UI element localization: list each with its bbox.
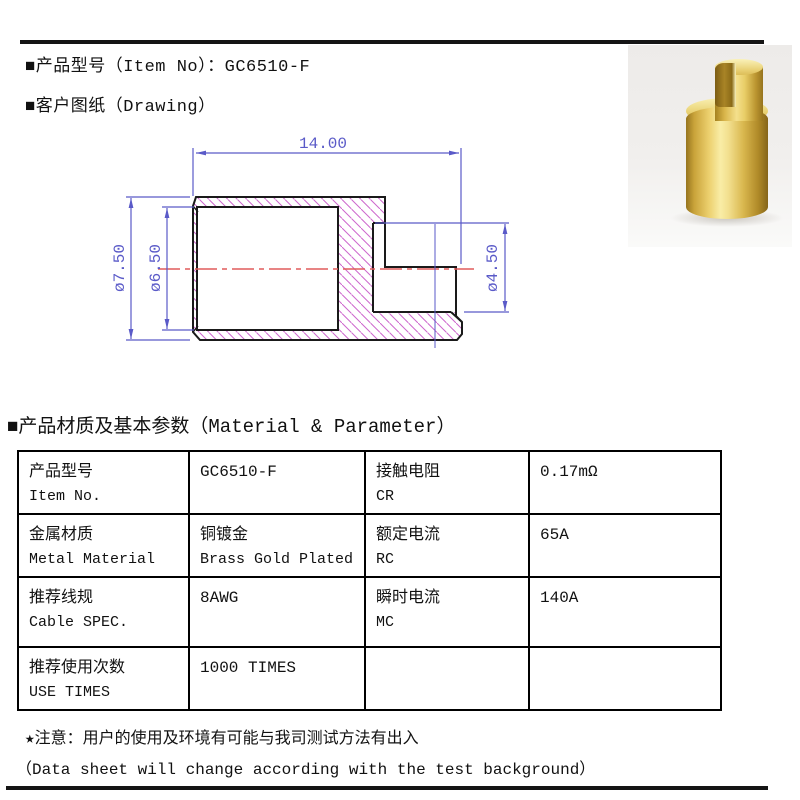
cell-line-cn: 产品型号: [29, 459, 182, 485]
table-cell: 推荐使用次数USE TIMES: [18, 647, 189, 710]
table-cell: 接触电阻CR: [365, 451, 529, 514]
table-row: 金属材质Metal Material 铜镀金Brass Gold Plated …: [18, 514, 721, 577]
cell-line-cn: 铜镀金: [200, 522, 358, 548]
cell-line-cn: 额定电流: [376, 522, 522, 548]
dim-outer-dia-label: ø7.50: [111, 244, 129, 292]
item-no-title: ■产品型号（Item No）：GC6510-F: [25, 51, 310, 77]
divider-top: [20, 40, 764, 44]
table-cell: [529, 647, 721, 710]
divider-bottom: [6, 786, 768, 790]
cell-line-en: Metal Material: [29, 548, 182, 572]
notice-line-cn: ★注意：用户的使用及环境有可能与我司测试方法有出入: [25, 724, 419, 748]
dim-length-label: 14.00: [299, 135, 347, 153]
cell-line-en: MC: [376, 611, 522, 635]
cell-line-cn: 接触电阻: [376, 459, 522, 485]
cell-line-cn: 140A: [540, 585, 714, 611]
cell-line-cn: 推荐线规: [29, 585, 182, 611]
table-cell: 0.17mΩ: [529, 451, 721, 514]
cell-line-cn: 推荐使用次数: [29, 655, 182, 681]
cell-line-cn: 0.17mΩ: [540, 459, 714, 485]
product-photo: [628, 45, 792, 247]
cell-line-en: Cable SPEC.: [29, 611, 182, 635]
cell-line-en: Item No.: [29, 485, 182, 509]
cell-line-en: Brass Gold Plated: [200, 548, 358, 572]
parameter-table: 产品型号Item No. GC6510-F 接触电阻CR 0.17mΩ 金属材质…: [17, 450, 722, 711]
dim-bore-dia-label: ø6.50: [147, 244, 165, 292]
cell-line-en: CR: [376, 485, 522, 509]
photo-cylinder-body: [686, 107, 768, 219]
notice-line-en: （Data sheet will change according with t…: [16, 755, 595, 779]
photo-tip-slot: [715, 63, 736, 107]
cell-line-en: RC: [376, 548, 522, 572]
material-parameter-title: ■产品材质及基本参数（Material & Parameter）: [7, 411, 455, 438]
dim-tip-dia-label: ø4.50: [484, 244, 502, 292]
cell-line-cn: 瞬时电流: [376, 585, 522, 611]
table-cell: 8AWG: [189, 577, 365, 647]
cell-line-cn: 金属材质: [29, 522, 182, 548]
table-row: 推荐线规Cable SPEC. 8AWG 瞬时电流MC 140A: [18, 577, 721, 647]
table-cell: 额定电流RC: [365, 514, 529, 577]
cell-line-cn: 1000 TIMES: [200, 655, 358, 681]
cell-line-cn: GC6510-F: [200, 459, 358, 485]
table-cell: 产品型号Item No.: [18, 451, 189, 514]
cell-line-cn: 65A: [540, 522, 714, 548]
table-cell: 推荐线规Cable SPEC.: [18, 577, 189, 647]
table-cell: [365, 647, 529, 710]
cell-line-cn: 8AWG: [200, 585, 358, 611]
technical-drawing: 14.00 ø7.50 ø6.50 ø4.50: [90, 128, 520, 368]
table-cell: GC6510-F: [189, 451, 365, 514]
table-cell: 金属材质Metal Material: [18, 514, 189, 577]
table-row: 产品型号Item No. GC6510-F 接触电阻CR 0.17mΩ: [18, 451, 721, 514]
cell-line-en: USE TIMES: [29, 681, 182, 705]
table-cell: 65A: [529, 514, 721, 577]
table-cell: 瞬时电流MC: [365, 577, 529, 647]
table-cell: 140A: [529, 577, 721, 647]
table-row: 推荐使用次数USE TIMES 1000 TIMES: [18, 647, 721, 710]
drawing-section-title: ■客户图纸（Drawing）: [25, 91, 216, 117]
table-cell: 1000 TIMES: [189, 647, 365, 710]
table-cell: 铜镀金Brass Gold Plated: [189, 514, 365, 577]
